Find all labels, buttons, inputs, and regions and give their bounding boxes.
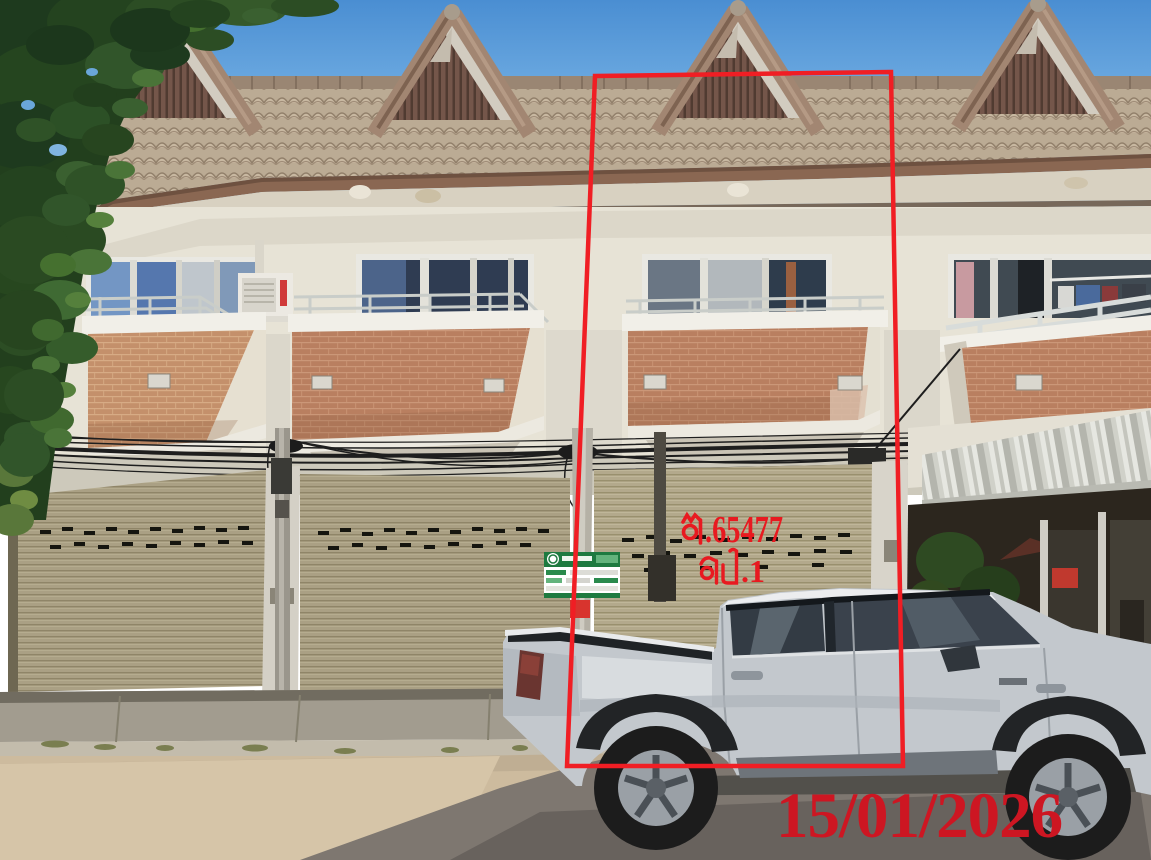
svg-text:.65477: .65477 [705, 509, 783, 551]
svg-text:.1: .1 [741, 553, 765, 589]
svg-text:15/01/2026: 15/01/2026 [776, 780, 1062, 852]
